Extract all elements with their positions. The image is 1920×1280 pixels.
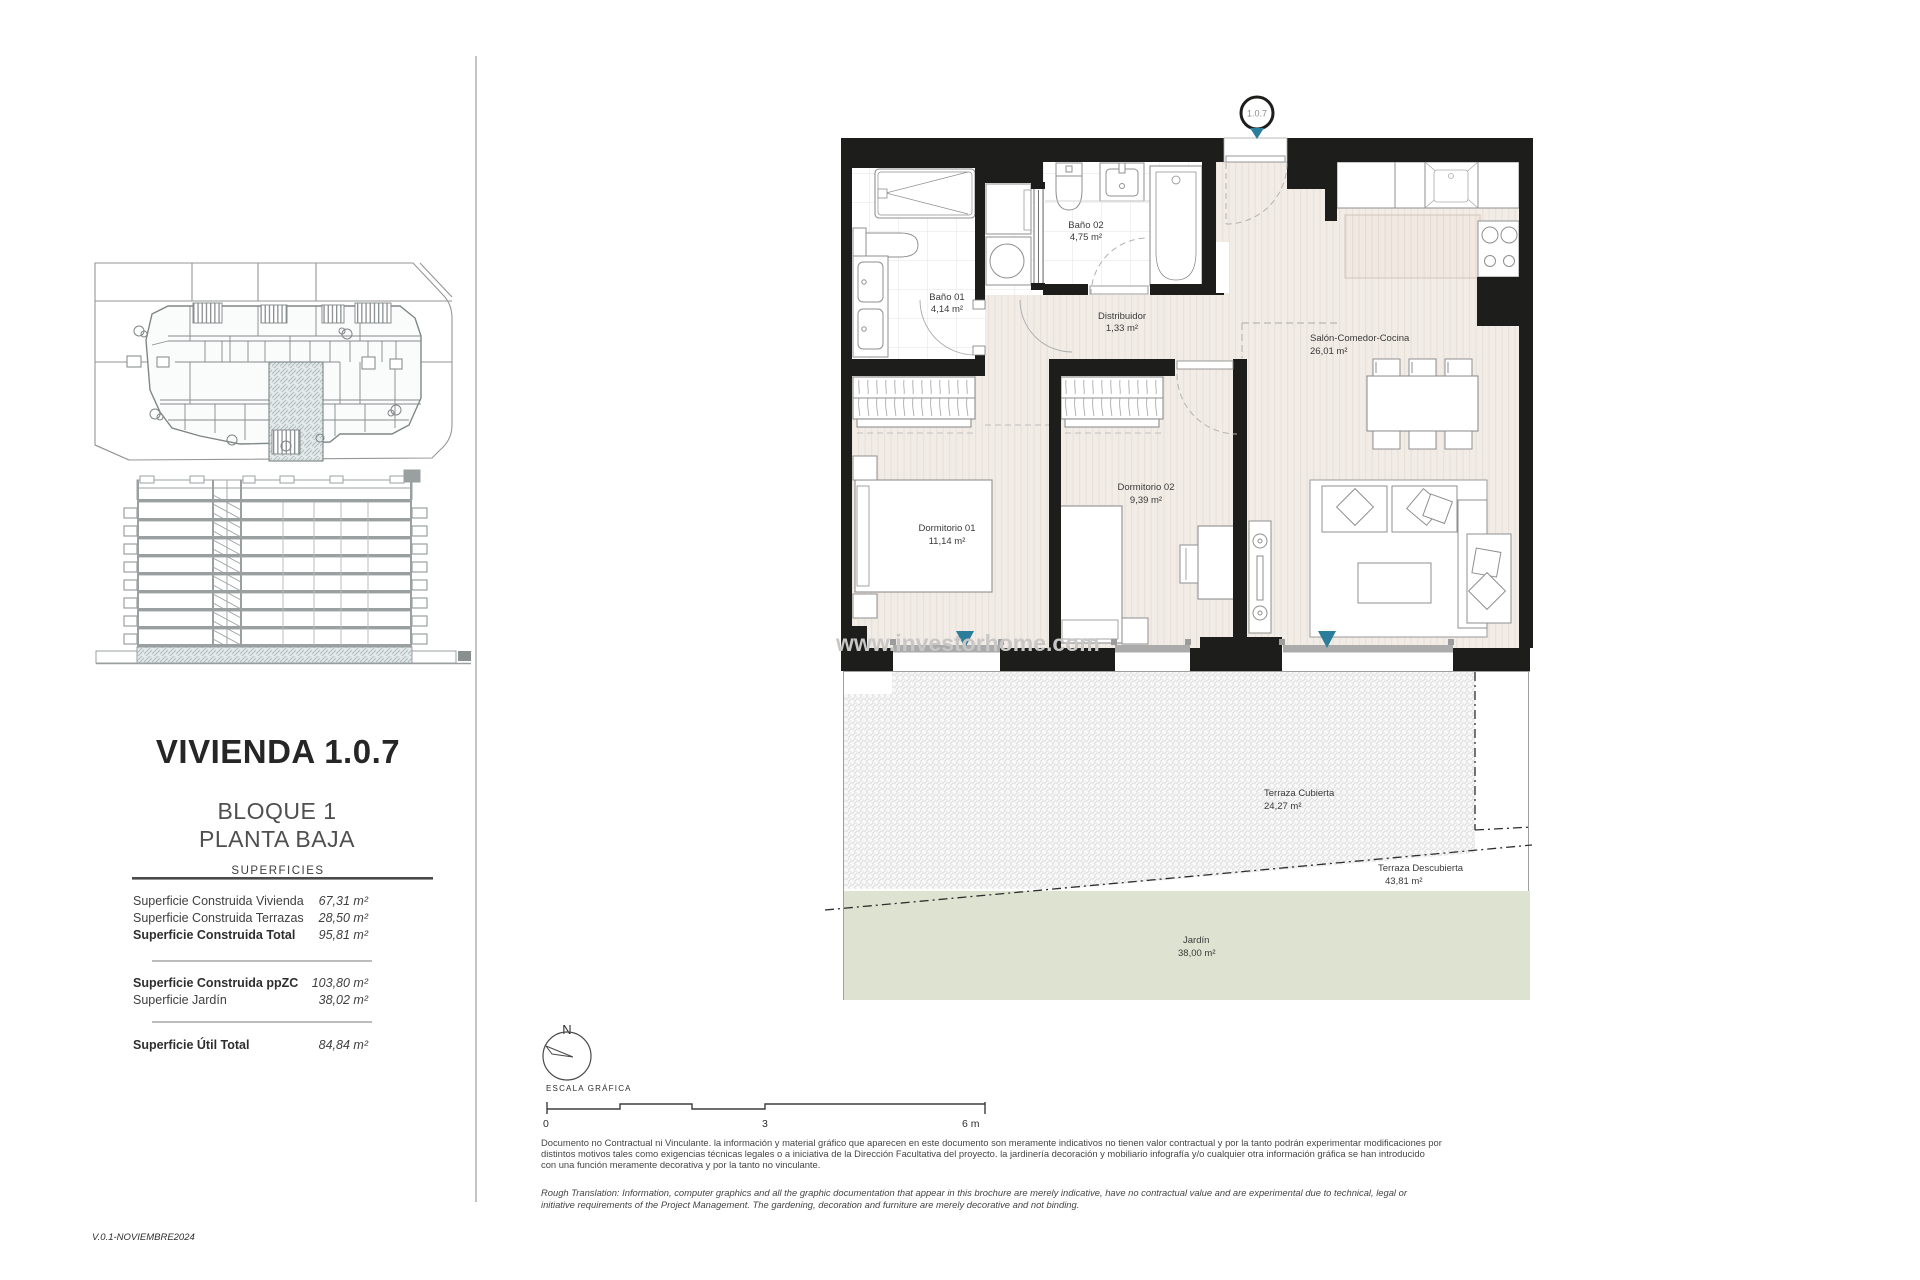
svg-text:3: 3 xyxy=(762,1118,768,1130)
svg-text:distintos motivos tales como: distintos motivos tales como exigencias … xyxy=(541,1148,1425,1159)
svg-text:initiative requirements of the: initiative requirements of the Project M… xyxy=(541,1199,1079,1210)
svg-text:Jardín: Jardín xyxy=(1183,935,1209,946)
svg-text:Superficie Construida ppZC: Superficie Construida ppZC xyxy=(133,976,298,990)
svg-text:28,50 m²: 28,50 m² xyxy=(318,911,369,925)
svg-text:4,14 m²: 4,14 m² xyxy=(931,304,963,315)
svg-text:43,81 m²: 43,81 m² xyxy=(1385,876,1423,887)
svg-text:26,01 m²: 26,01 m² xyxy=(1310,346,1348,357)
svg-text:Baño 01: Baño 01 xyxy=(929,292,964,303)
svg-text:Superficie Construida Terrazas: Superficie Construida Terrazas xyxy=(133,911,304,925)
svg-text:84,84 m²: 84,84 m² xyxy=(319,1038,369,1052)
svg-text:1.0.7: 1.0.7 xyxy=(1247,109,1267,119)
svg-text:38,02 m²: 38,02 m² xyxy=(319,993,369,1007)
svg-text:95,81 m²: 95,81 m² xyxy=(319,928,369,942)
svg-text:24,27 m²: 24,27 m² xyxy=(1264,801,1302,812)
svg-text:11,14 m²: 11,14 m² xyxy=(929,536,966,547)
svg-text:67,31 m²: 67,31 m² xyxy=(319,894,369,908)
svg-text:0: 0 xyxy=(543,1118,549,1130)
svg-text:www.investorhome.com: www.investorhome.com xyxy=(835,630,1100,656)
svg-text:Terraza Descubierta: Terraza Descubierta xyxy=(1378,863,1464,874)
svg-text:Rough Translation: Information: Rough Translation: Information, computer… xyxy=(541,1187,1408,1198)
svg-text:V.0.1-NOVIEMBRE2024: V.0.1-NOVIEMBRE2024 xyxy=(92,1232,195,1243)
svg-text:Documento no Contractual ni Vi: Documento no Contractual ni Vinculante. … xyxy=(541,1137,1442,1148)
svg-text:Baño 02: Baño 02 xyxy=(1068,220,1103,231)
svg-text:Superficie Construida Total: Superficie Construida Total xyxy=(133,928,295,942)
svg-text:6 m: 6 m xyxy=(962,1118,980,1130)
svg-text:SUPERFICIES: SUPERFICIES xyxy=(231,865,324,877)
svg-text:Dormitorio 02: Dormitorio 02 xyxy=(1117,482,1174,493)
svg-text:103,80 m²: 103,80 m² xyxy=(312,976,369,990)
svg-text:Superficie Jardín: Superficie Jardín xyxy=(133,993,227,1007)
svg-text:N: N xyxy=(562,1022,571,1037)
svg-text:1,33 m²: 1,33 m² xyxy=(1106,323,1138,334)
svg-text:Dormitorio 01: Dormitorio 01 xyxy=(918,523,975,534)
svg-text:Salón-Comedor-Cocina: Salón-Comedor-Cocina xyxy=(1310,333,1410,344)
svg-text:Distribuidor: Distribuidor xyxy=(1098,311,1146,322)
svg-text:ESCALA GRÁFICA: ESCALA GRÁFICA xyxy=(546,1084,632,1093)
svg-text:Superficie Construida Vivienda: Superficie Construida Vivienda xyxy=(133,894,304,908)
svg-text:38,00 m²: 38,00 m² xyxy=(1178,948,1216,959)
svg-text:4,75 m²: 4,75 m² xyxy=(1070,232,1102,243)
svg-text:BLOQUE 1: BLOQUE 1 xyxy=(217,798,336,824)
svg-text:con una función meramente deco: con una función meramente decorativa y p… xyxy=(541,1159,820,1170)
svg-text:Terraza Cubierta: Terraza Cubierta xyxy=(1264,788,1335,799)
svg-text:VIVIENDA 1.0.7: VIVIENDA 1.0.7 xyxy=(156,733,400,770)
svg-text:9,39 m²: 9,39 m² xyxy=(1130,495,1162,506)
svg-text:PLANTA BAJA: PLANTA BAJA xyxy=(199,826,355,852)
svg-text:Superficie Útil Total: Superficie Útil Total xyxy=(133,1037,249,1052)
